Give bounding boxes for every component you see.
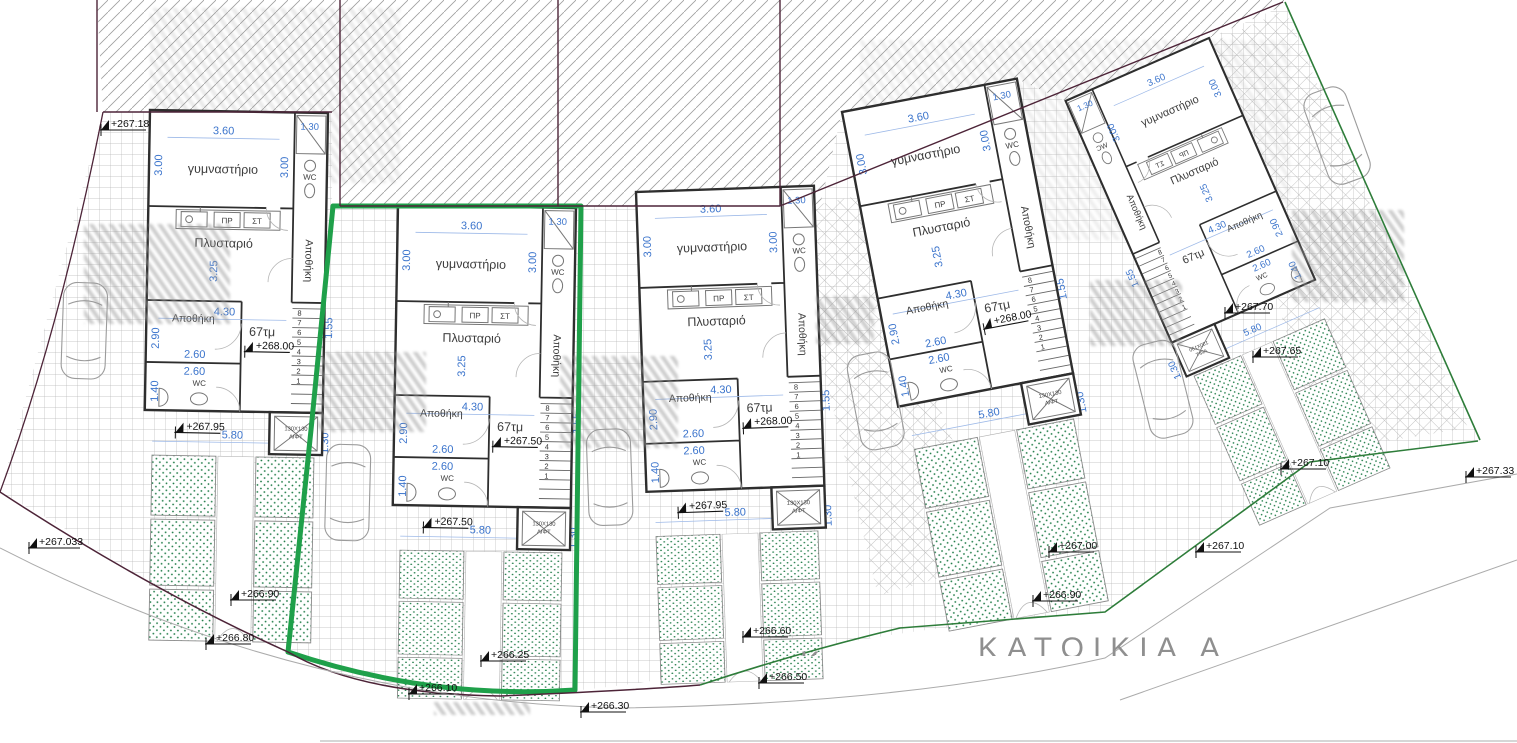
washer-label: ΠΡ (469, 311, 480, 320)
wc-room-label: WC (192, 379, 206, 388)
dim-bath-depth: 3.00 (279, 157, 291, 179)
storage-corridor-label: Αποθήκη (795, 313, 808, 356)
stair-number: 7 (297, 318, 301, 327)
dim-laundry-width: 4.30 (462, 401, 484, 413)
svg-text:+267.10: +267.10 (1291, 457, 1329, 469)
spot-level-marker: +266.30 (580, 700, 629, 718)
laundry-label: Πλυσταριό (687, 313, 746, 329)
garden-path (463, 551, 502, 700)
svg-text:+266.10: +266.10 (419, 682, 457, 694)
garden-bed (254, 521, 313, 588)
storage-corridor-label: Αποθήκη (302, 239, 315, 282)
spot-level-marker: +267.033 (28, 536, 83, 554)
dim-gym-width: 3.60 (700, 203, 722, 216)
garden-bed (1017, 419, 1085, 489)
garden-bed (149, 589, 214, 641)
interior-level: +267.50 (504, 435, 543, 448)
garden-bed (926, 500, 1001, 577)
lift-label: ΛΙΦΤ (289, 434, 303, 440)
stair-number: 1 (544, 471, 548, 480)
spot-level-marker: +267.10 (1195, 540, 1244, 558)
dim-storage-width: 2.60 (184, 349, 206, 361)
site-plan-canvas: 5.80 1.30 1.55 87654321 WC (0, 0, 1517, 743)
garden-bed (150, 519, 215, 586)
dim-bath-depth: 3.00 (527, 252, 539, 274)
stair-number: 3 (297, 357, 301, 366)
stair-number: 4 (297, 347, 301, 356)
area-label: 67τμ (249, 325, 275, 339)
svg-text:+267.033: +267.033 (39, 536, 83, 548)
stair-number: 1 (796, 450, 800, 459)
lift-size-label: 130X130 (284, 426, 307, 432)
stair-number: 6 (297, 328, 301, 337)
site-plan: 5.80 1.30 1.55 87654321 WC (0, 0, 1517, 743)
svg-text:+267.18: +267.18 (111, 118, 149, 130)
laundry-label: Πλυσταριό (442, 331, 501, 346)
svg-text:+266.60: +266.60 (753, 625, 791, 637)
garden-bed (760, 531, 820, 581)
garden-bed (660, 641, 725, 684)
interior-level: +268.00 (256, 340, 295, 353)
dim-gym-width: 3.60 (213, 125, 235, 137)
dim-storage-width: 2.60 (432, 444, 454, 456)
garden-path (215, 456, 254, 642)
stair-number: 7 (545, 413, 549, 422)
stair-number: 5 (297, 338, 301, 347)
gym-label: γυμναστήριο (436, 257, 506, 272)
stair-number: 8 (297, 309, 301, 318)
svg-text:+267.65: +267.65 (1263, 345, 1301, 357)
front-garden (656, 531, 823, 685)
dim-laundry-width: 4.30 (710, 384, 732, 397)
svg-text:+267.33: +267.33 (1476, 465, 1514, 477)
svg-text:+266.90: +266.90 (1043, 589, 1081, 601)
garden-bed (398, 601, 463, 655)
area-label: 67τμ (497, 420, 523, 434)
garden-bed (399, 550, 464, 599)
spot-level-marker: +267.33 (1465, 465, 1514, 483)
stair-number: 5 (795, 412, 799, 421)
dim-wc-width: 2.60 (683, 445, 705, 458)
unit-1: 5.80 1.30 1.55 87654321 WC (141, 110, 339, 643)
svg-text:+267.70: +267.70 (1235, 301, 1273, 313)
dim-gym-depth: 3.00 (153, 154, 165, 176)
dim-laundry-depth: 3.25 (456, 355, 468, 377)
stair-number: 2 (544, 462, 548, 471)
stair-number: 2 (296, 367, 300, 376)
svg-text:+266.90: +266.90 (241, 588, 279, 600)
dryer-label: ΣΤ (744, 293, 754, 302)
dim-wc-width: 2.60 (184, 366, 206, 378)
wc-room-label: WC (440, 474, 454, 483)
washer-label: ΠΡ (713, 294, 724, 303)
interior-level: +268.00 (754, 415, 793, 428)
gym-label: γυμναστήριο (188, 162, 258, 177)
stair-number: 4 (795, 421, 799, 430)
stair-number: 2 (796, 441, 800, 450)
bath-label: WC (303, 173, 317, 182)
storage-room-label: Αποθήκη (420, 407, 463, 420)
area-label: 67τμ (746, 400, 773, 415)
gym-label: γυμναστήριο (677, 239, 748, 255)
stair-number: 3 (795, 431, 799, 440)
dim-bath-depth: 3.00 (767, 231, 780, 253)
stair-number: 3 (545, 452, 549, 461)
lift-size-label: 130X130 (532, 521, 555, 527)
stair-number: 7 (794, 392, 798, 401)
bath-label: WC (792, 246, 806, 255)
dim-storage-width: 2.60 (683, 428, 705, 441)
dim-wc-depth: 1.40 (397, 475, 409, 497)
dryer-label: ΣΤ (500, 312, 510, 321)
porch-level: +267.95 (186, 421, 225, 434)
dim-wc-width: 2.60 (432, 461, 454, 473)
stair-number: 1 (296, 376, 300, 385)
garden-bed (1042, 551, 1109, 612)
dim-frontage: 5.80 (222, 429, 244, 441)
garden-bed (656, 534, 722, 584)
svg-text:+266.80: +266.80 (216, 632, 254, 644)
lift-size-label: 130X130 (787, 500, 810, 507)
wc-room-label: WC (693, 458, 707, 467)
dim-frontage: 5.80 (724, 506, 746, 519)
dim-gym-width: 3.60 (461, 220, 483, 232)
dim-wc-depth: 1.40 (149, 380, 161, 402)
dryer-label: ΣΤ (252, 217, 262, 226)
residence-title: ΚΑΤΟΙΚΙΑ Α (978, 632, 1229, 665)
garden-bed (915, 437, 989, 508)
dim-frontage: 5.80 (470, 524, 492, 536)
porch-level: +267.95 (689, 499, 728, 512)
svg-text:+266.25: +266.25 (491, 649, 529, 661)
stair-number: 8 (794, 382, 798, 391)
front-garden (149, 455, 314, 643)
svg-text:+266.30: +266.30 (591, 700, 629, 712)
stair-number: 4 (545, 442, 549, 451)
porch-level: +267.50 (434, 516, 473, 529)
dim-gym-depth: 3.00 (642, 236, 655, 258)
stair-number: 5 (545, 433, 549, 442)
dim-gym-depth: 3.00 (401, 249, 413, 271)
front-garden (397, 550, 562, 701)
stair-number: 8 (545, 404, 549, 413)
lift-label: ΛΙΦΤ (537, 529, 551, 535)
dim-wc-depth: 1.40 (649, 462, 662, 484)
dim-storage-depth: 2.90 (150, 327, 162, 349)
garden-bed (151, 455, 216, 516)
stair-number: 6 (794, 402, 798, 411)
svg-text:+267.00: +267.00 (1059, 540, 1097, 552)
garden-path (722, 533, 763, 682)
unit-2: 5.80 1.30 1.55 87654321 WC (389, 205, 587, 701)
dryer-label: ΣΤ (964, 194, 975, 205)
svg-text:+267.10: +267.10 (1206, 540, 1244, 552)
bath-label: WC (551, 268, 565, 277)
dim-laundry-depth: 3.25 (702, 339, 715, 361)
svg-text:+266.50: +266.50 (769, 671, 807, 683)
stair-number: 6 (545, 423, 549, 432)
lift-label: ΛΙΦΤ (792, 508, 806, 514)
dim-bath-width: 1.30 (300, 122, 319, 133)
dim-bath-width: 1.30 (548, 217, 567, 228)
garden-bed (658, 585, 724, 640)
garden-bed (503, 552, 562, 601)
